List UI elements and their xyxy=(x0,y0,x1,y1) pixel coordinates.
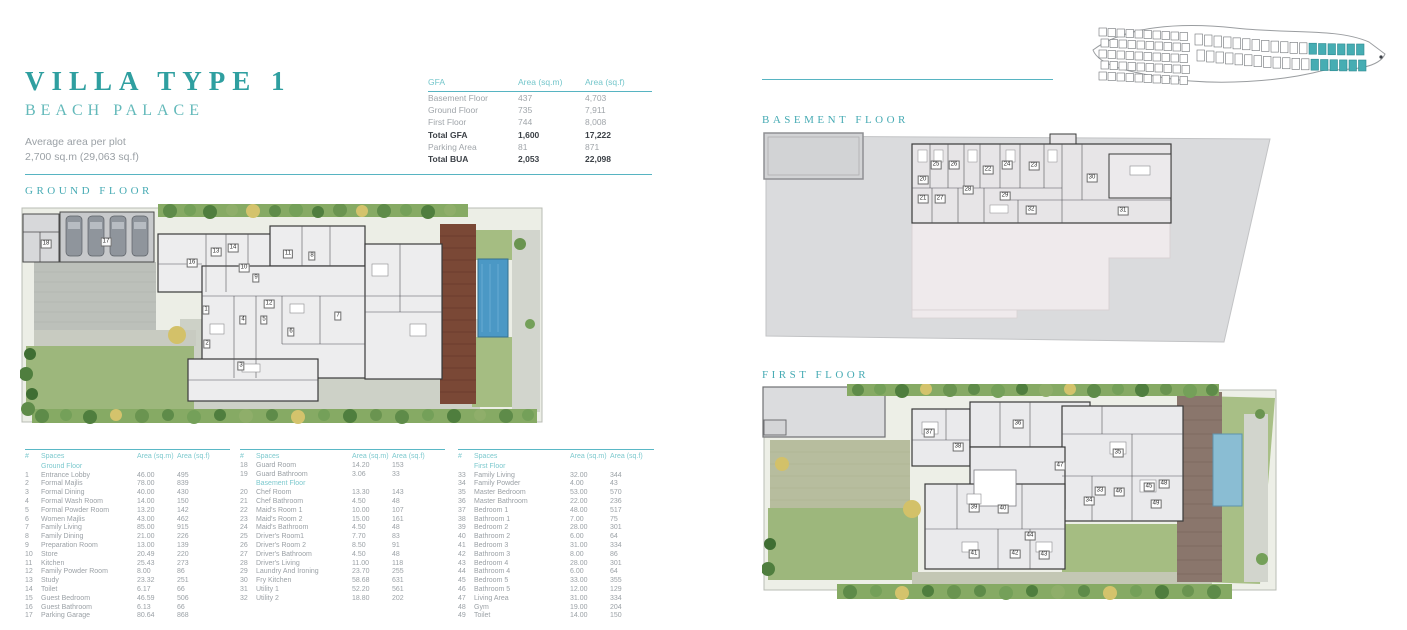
room-number: 24 xyxy=(1002,161,1013,170)
site-map xyxy=(1085,8,1397,108)
space-table-row: 43Bedroom 428.00301 xyxy=(458,560,654,569)
room-number: 11 xyxy=(283,250,293,259)
space-table-group-heading: Ground Floor xyxy=(41,463,230,472)
space-table-row: 44Bathroom 46.0064 xyxy=(458,568,654,577)
space-table-row: 25Driver's Room17.7083 xyxy=(240,533,445,542)
gfa-table: GFA Area (sq.m) Area (sq.f) Basement Flo… xyxy=(428,77,652,165)
room-number: 20 xyxy=(918,176,929,185)
space-table-row: 26Driver's Room 28.5091 xyxy=(240,542,445,551)
space-table-row: 17Parking Garage80.64868 xyxy=(25,612,230,621)
room-number: 41 xyxy=(969,550,980,559)
gfa-table-row: First Floor7448,008 xyxy=(428,116,652,128)
room-number: 37 xyxy=(924,429,935,438)
room-number: 28 xyxy=(963,186,974,195)
space-table-row: 20Chef Room13.30143 xyxy=(240,489,445,498)
room-number: 26 xyxy=(949,161,960,170)
space-table-row: 37Bedroom 148.00517 xyxy=(458,507,654,516)
room-number: 6 xyxy=(287,328,294,337)
section-label-basement-floor: BASEMENT FLOOR xyxy=(762,114,909,126)
brochure-page: VILLA TYPE 1 BEACH PALACE Average area p… xyxy=(0,0,1407,630)
section-label-ground-floor: GROUND FLOOR xyxy=(25,185,153,197)
gfa-table-body: Basement Floor4374,703Ground Floor7357,9… xyxy=(428,92,652,165)
gfa-table-row: Total BUA2,05322,098 xyxy=(428,153,652,165)
space-table-row: 22Maid's Room 110.00107 xyxy=(240,507,445,516)
gfa-table-row: Ground Floor7357,911 xyxy=(428,104,652,116)
space-table-ground: #SpacesArea (sq.m)Area (sq.f)Ground Floo… xyxy=(25,449,230,621)
space-table-row: 38Bathroom 17.0075 xyxy=(458,516,654,525)
space-table-row: 8Family Dining21.00226 xyxy=(25,533,230,542)
space-table-row: 39Bedroom 228.00301 xyxy=(458,524,654,533)
basement-floor-plan-drawing xyxy=(762,130,1407,368)
space-table-row: 34Family Powder4.0043 xyxy=(458,480,654,489)
space-table-group-heading: First Floor xyxy=(474,463,654,472)
space-table-row: 23Maid's Room 215.00161 xyxy=(240,516,445,525)
space-table-row: 12Family Powder Room8.0086 xyxy=(25,568,230,577)
space-table-row: 48Gym19.00204 xyxy=(458,604,654,613)
space-table-row: 16Guest Bathroom6.1366 xyxy=(25,604,230,613)
room-number: 38 xyxy=(953,443,964,452)
space-table-row: 29Laundry And Ironing23.70255 xyxy=(240,568,445,577)
room-number: 7 xyxy=(334,312,341,321)
first-floor-plan: 3736384735453346344039444142434849 xyxy=(762,384,1407,626)
space-table-row: 1Entrance Lobby46.00495 xyxy=(25,472,230,481)
room-number: 2 xyxy=(203,340,210,349)
room-number: 14 xyxy=(228,244,239,253)
space-table-row: 5Formal Powder Room13.20142 xyxy=(25,507,230,516)
room-number: 8 xyxy=(308,252,315,261)
room-number: 3 xyxy=(237,362,244,371)
space-table-row: 49Toilet14.00150 xyxy=(458,612,654,621)
room-number: 34 xyxy=(1084,497,1095,506)
space-table-row: 9Preparation Room13.00139 xyxy=(25,542,230,551)
room-number: 33 xyxy=(1095,487,1106,496)
divider-left xyxy=(25,174,652,175)
space-table-row: 3Formal Dining40.00430 xyxy=(25,489,230,498)
space-table-header: #SpacesArea (sq.m)Area (sq.f) xyxy=(458,453,654,462)
room-number: 16 xyxy=(187,259,198,268)
gfa-table-header: GFA Area (sq.m) Area (sq.f) xyxy=(428,77,652,92)
room-number: 21 xyxy=(918,195,929,204)
room-number: 18 xyxy=(41,240,52,249)
room-number: 39 xyxy=(969,504,980,513)
space-table-row: 31Utility 152.20561 xyxy=(240,586,445,595)
space-table-header: #SpacesArea (sq.m)Area (sq.f) xyxy=(240,453,445,462)
space-table-row: 41Bedroom 331.00334 xyxy=(458,542,654,551)
site-map-drawing xyxy=(1085,8,1397,108)
room-number: 48 xyxy=(1159,480,1170,489)
space-table-row: 4Formal Wash Room14.00150 xyxy=(25,498,230,507)
room-number: 31 xyxy=(1118,207,1129,216)
space-table-row: 27Driver's Bathroom4.5048 xyxy=(240,551,445,560)
space-table-row: 28Driver's Living11.00118 xyxy=(240,560,445,569)
space-table-row: 45Bedroom 533.00355 xyxy=(458,577,654,586)
ground-floor-plan: 1718161314101189121456723 xyxy=(20,204,553,447)
space-table-row: 33Family Living32.00344 xyxy=(458,472,654,481)
space-table-row: 46Bathroom 512.00129 xyxy=(458,586,654,595)
average-area-value: 2,700 sq.m (29,063 sq.f) xyxy=(25,151,139,163)
space-table-row: 10Store20.49220 xyxy=(25,551,230,560)
space-table-row: 6Women Majlis43.00462 xyxy=(25,516,230,525)
room-number: 23 xyxy=(1029,162,1040,171)
room-number: 45 xyxy=(1144,483,1155,492)
room-number: 13 xyxy=(211,248,222,257)
room-number: 12 xyxy=(264,300,275,309)
space-table-row: 35Master Bedroom53.00570 xyxy=(458,489,654,498)
space-table-first: #SpacesArea (sq.m)Area (sq.f)First Floor… xyxy=(458,449,654,621)
space-table-row: 2Formal Majlis78.00839 xyxy=(25,480,230,489)
space-table-group-heading: Basement Floor xyxy=(256,480,445,489)
room-number: 9 xyxy=(252,274,259,283)
space-table-row: 18Guard Room14.20153 xyxy=(240,462,445,471)
room-number: 22 xyxy=(983,166,994,175)
room-number: 40 xyxy=(998,505,1009,514)
average-area-label: Average area per plot xyxy=(25,136,126,148)
room-number: 4 xyxy=(239,316,246,325)
space-table-header: #SpacesArea (sq.m)Area (sq.f) xyxy=(25,453,230,462)
room-number: 44 xyxy=(1025,532,1036,541)
space-table-row: 7Family Living85.00915 xyxy=(25,524,230,533)
space-table-row: 30Fry Kitchen58.68631 xyxy=(240,577,445,586)
space-table-row: 47Living Area31.00334 xyxy=(458,595,654,604)
page-title: VILLA TYPE 1 xyxy=(25,66,292,97)
space-table-guard-basement: #SpacesArea (sq.m)Area (sq.f)18Guard Roo… xyxy=(240,449,445,604)
room-number: 5 xyxy=(260,316,267,325)
room-number: 25 xyxy=(931,161,942,170)
space-table-row: 32Utility 218.80202 xyxy=(240,595,445,604)
room-number: 36 xyxy=(1013,420,1024,429)
room-number: 1 xyxy=(202,306,209,315)
gfa-table-row: Parking Area81871 xyxy=(428,141,652,153)
space-table-row: 11Kitchen25.43273 xyxy=(25,560,230,569)
section-label-first-floor: FIRST FLOOR xyxy=(762,369,869,381)
room-number: 49 xyxy=(1151,500,1162,509)
room-number: 47 xyxy=(1055,462,1066,471)
room-number: 35 xyxy=(1113,449,1124,458)
room-number: 43 xyxy=(1039,551,1050,560)
space-table-row: 42Bathroom 38.0086 xyxy=(458,551,654,560)
gfa-table-row: Basement Floor4374,703 xyxy=(428,92,652,104)
room-number: 27 xyxy=(935,195,946,204)
room-number: 29 xyxy=(1000,192,1011,201)
space-table-row: 13Study23.32251 xyxy=(25,577,230,586)
room-number: 30 xyxy=(1087,174,1098,183)
space-table-row: 15Guest Bedroom46.59506 xyxy=(25,595,230,604)
page-subtitle: BEACH PALACE xyxy=(25,102,204,120)
space-table-row: 40Bathroom 26.0064 xyxy=(458,533,654,542)
space-table-row: 21Chef Bathroom4.5048 xyxy=(240,498,445,507)
space-table-row: 24Maid's Bathroom4.5048 xyxy=(240,524,445,533)
space-table-row: 19Guard Bathroom3.0633 xyxy=(240,471,445,480)
room-number: 32 xyxy=(1026,206,1037,215)
space-table-row: 36Master Bathroom22.00236 xyxy=(458,498,654,507)
basement-floor-plan: 20252622242321272829323031 xyxy=(762,130,1407,368)
gfa-table-row: Total GFA1,60017,222 xyxy=(428,129,652,141)
room-number: 17 xyxy=(101,238,112,247)
divider-right xyxy=(762,79,1053,80)
room-number: 46 xyxy=(1114,488,1125,497)
room-number: 10 xyxy=(239,264,250,273)
room-number: 42 xyxy=(1010,550,1021,559)
space-table-row: 14Toilet6.1766 xyxy=(25,586,230,595)
